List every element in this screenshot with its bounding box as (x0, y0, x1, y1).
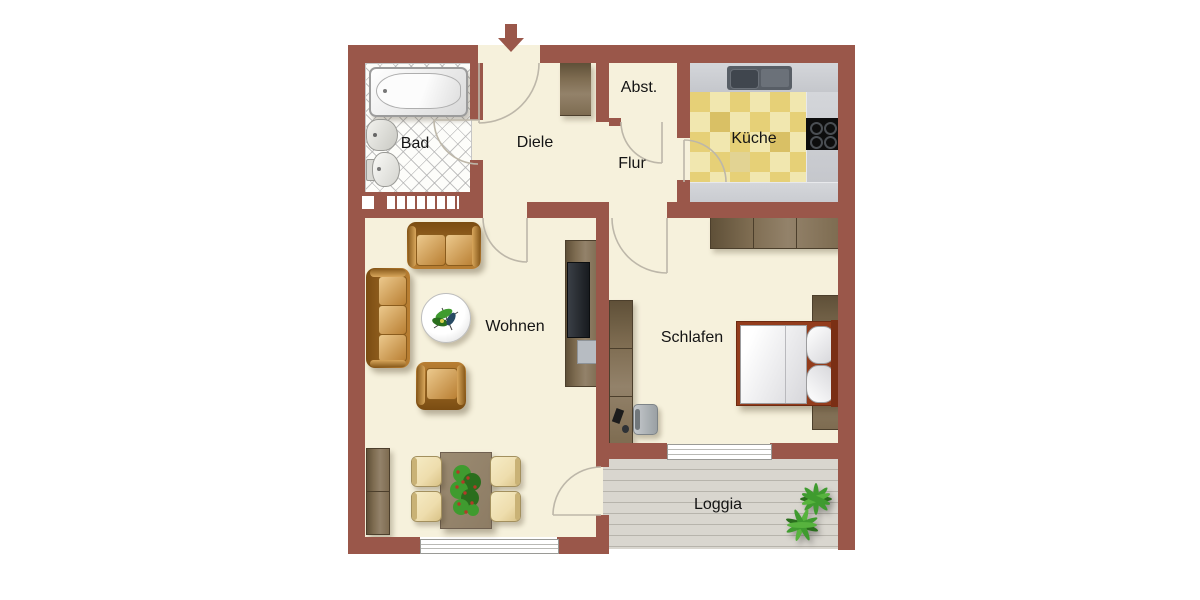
entrance-arrow-icon (505, 24, 517, 39)
sofa-two-seat (407, 222, 481, 269)
bedroom-desk-unit (609, 300, 633, 445)
chair-back (412, 458, 417, 485)
sofa-cushion (378, 334, 407, 362)
room-label-diele: Diele (517, 134, 553, 152)
desk-chair-back (635, 409, 640, 430)
wall-bedroom-south-left (609, 443, 667, 459)
bathtub-drain (383, 89, 387, 93)
cooktop (806, 118, 838, 150)
wall-abst-stub (609, 118, 621, 126)
wall-kitchen-south (690, 202, 838, 218)
wall-top-left (348, 45, 478, 63)
glass-block-strip (387, 196, 459, 209)
room-label-bad: Bad (401, 135, 429, 153)
desk-item (622, 425, 629, 433)
room-label-flur: Flur (618, 155, 646, 173)
wall-right (838, 63, 855, 550)
wall-bath-east-lower (470, 160, 483, 192)
burner (824, 122, 837, 135)
sofa-cushion (445, 234, 475, 266)
kitchen-tile-accent (730, 152, 750, 172)
loggia-plant (778, 477, 840, 549)
wall-kitchen-west-lower (677, 180, 690, 218)
wall-bath-east-upper (470, 63, 483, 120)
sofa-armrest (370, 269, 406, 277)
room-label-abstellraum: Abst. (621, 79, 657, 97)
window-pane-line (668, 454, 771, 455)
dining-chair (411, 491, 442, 522)
desk-divider (610, 348, 632, 349)
burner (824, 136, 837, 149)
armchair-cushion (426, 368, 458, 400)
wall-bedroom-south-right (770, 443, 855, 459)
coffee-table (421, 293, 471, 343)
sofa-cushion (378, 276, 407, 306)
sideboard (366, 448, 390, 535)
sofa-armrest (472, 226, 480, 267)
wardrobe-divider (796, 217, 797, 248)
kitchen-tile-accent (710, 112, 730, 132)
dining-plant (444, 460, 488, 522)
bathtub-basin (376, 73, 461, 109)
desk-divider (610, 396, 632, 397)
sofa-armrest (370, 360, 406, 367)
wall-abst-west (596, 63, 609, 122)
bathtub (369, 67, 468, 117)
sofa-cushion (416, 234, 446, 266)
chair-back (515, 493, 520, 520)
bedroom-wardrobe (710, 216, 840, 249)
bedroom-window (667, 444, 772, 460)
tv-screen (567, 262, 590, 338)
desk-chair (633, 404, 658, 435)
bed-duvet (740, 325, 807, 404)
sink-drainboard (761, 69, 789, 87)
window-pane-line (668, 449, 771, 450)
desk-item (612, 408, 624, 424)
kitchen-sink (727, 66, 792, 90)
entrance-arrow-head (498, 38, 524, 52)
wall-kitchen-west-upper (677, 63, 690, 138)
chair-back (515, 458, 520, 485)
dining-table (440, 452, 492, 529)
washbasin (366, 119, 398, 151)
glass-block (362, 196, 374, 209)
sofa-armrest (408, 226, 416, 267)
media-box (577, 340, 597, 364)
sofa-three-seat (366, 268, 410, 368)
armchair (416, 362, 466, 410)
wardrobe-divider (753, 217, 754, 248)
wall-top-right (540, 45, 855, 63)
living-room-window (420, 539, 559, 554)
room-label-loggia: Loggia (694, 496, 742, 514)
table-plant (422, 294, 470, 342)
armchair-armrest (457, 365, 465, 405)
wall-bottom-left (348, 537, 420, 554)
sink-basin (730, 69, 759, 89)
armchair-armrest (417, 365, 425, 405)
room-label-schlafen: Schlafen (661, 329, 723, 347)
chair-back (412, 493, 417, 520)
dining-chair (490, 456, 521, 487)
toilet-seat-dot (377, 167, 381, 171)
toilet (366, 152, 399, 186)
dining-chair (490, 491, 521, 522)
bed-headboard (831, 320, 838, 407)
dining-chair (411, 456, 442, 487)
window-pane-line (421, 548, 558, 549)
window-pane-line (421, 544, 558, 545)
sideboard-divider (367, 491, 389, 492)
wall-left (348, 63, 365, 554)
burner (810, 122, 823, 135)
wall-living-bedroom-divider (596, 202, 609, 467)
duvet-fold (785, 326, 786, 403)
wall-bath-south (348, 192, 483, 218)
sofa-cushion (378, 305, 407, 335)
washbasin-drain (373, 133, 377, 137)
floor-plan: Bad Diele Abst. Flur Küche Wohnen Schlaf… (0, 0, 1200, 600)
room-label-kueche: Küche (731, 130, 776, 148)
tv-lowboard (565, 240, 599, 387)
bed (736, 321, 839, 406)
burner (810, 136, 823, 149)
room-label-wohnen: Wohnen (485, 318, 544, 336)
hall-wardrobe (560, 63, 591, 116)
wall-loggia-pillar (596, 515, 609, 554)
